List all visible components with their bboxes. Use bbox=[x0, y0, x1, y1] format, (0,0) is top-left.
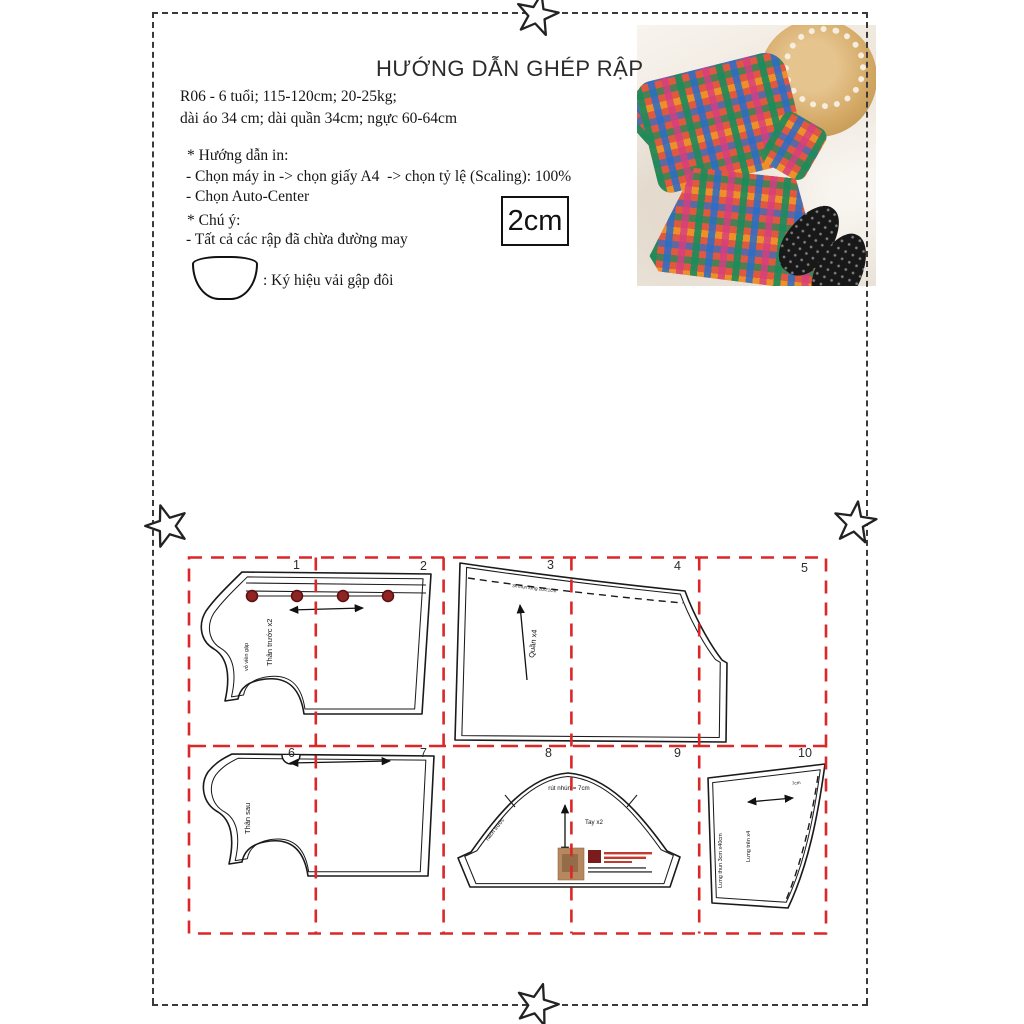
piece-label: Quần x4 bbox=[527, 629, 539, 658]
button-mark bbox=[292, 591, 303, 602]
sheet-border-top bbox=[152, 12, 868, 14]
fold-edge-line bbox=[786, 776, 818, 900]
button-mark bbox=[247, 591, 258, 602]
print-instructions-step1: - Chọn máy in -> chọn giấy A4 -> chọn tỷ… bbox=[186, 168, 571, 186]
star-icon bbox=[510, 0, 565, 42]
star-icon bbox=[138, 497, 196, 555]
page-title: HƯỚNG DẪN GHÉP RẬP bbox=[376, 56, 644, 82]
piece-label: Lưng trên x4 bbox=[746, 831, 752, 862]
pattern-piece-back-bodice: Thân sau bbox=[203, 754, 434, 876]
pattern-piece-sleeve: rút nhún = 7cm nách trước Tay x2 bbox=[458, 773, 680, 887]
size-info-line2: dài áo 34 cm; dài quần 34cm; ngực 60-64c… bbox=[180, 110, 457, 128]
star-icon bbox=[509, 977, 566, 1024]
product-photo bbox=[637, 25, 876, 286]
fold-symbol-caption: : Ký hiệu vải gập đôi bbox=[263, 272, 393, 290]
print-instructions-step2: - Chọn Auto-Center bbox=[186, 188, 309, 206]
size-info-line1: R06 - 6 tuổi; 115-120cm; 20-25kg; bbox=[180, 88, 397, 106]
button-mark bbox=[338, 591, 349, 602]
page-number-7: 7 bbox=[420, 746, 427, 760]
page-number-5: 5 bbox=[801, 561, 808, 575]
waist-note: 3x thun lưng 20/21cm bbox=[512, 583, 557, 593]
print-page-grid bbox=[189, 558, 826, 934]
page-number-1: 1 bbox=[293, 558, 300, 572]
page-number-10: 10 bbox=[798, 746, 812, 760]
note-heading: * Chú ý: bbox=[187, 212, 240, 230]
scale-reference-label: 2cm bbox=[508, 205, 563, 238]
fabric-fold-icon bbox=[192, 256, 258, 300]
page-number-4: 4 bbox=[674, 559, 681, 573]
fold-note: 7cm bbox=[792, 780, 801, 786]
grainline-arrow bbox=[520, 605, 527, 680]
scale-reference-box: 2cm bbox=[501, 196, 569, 246]
piece-label: Thân trước x2 bbox=[265, 619, 274, 666]
page-number-2: 2 bbox=[420, 559, 427, 573]
page-number-9: 9 bbox=[674, 746, 681, 760]
pattern-piece-pants: 3x thun lưng 20/21cm Quần x4 bbox=[455, 563, 727, 742]
elastic-label: Lưng thun 3cm x40cm bbox=[718, 833, 724, 888]
grainline-arrow bbox=[748, 798, 793, 802]
pattern-piece-waistband: Lưng thun 3cm x40cm Lưng trên x4 7cm bbox=[708, 764, 825, 908]
star-icon bbox=[829, 497, 881, 549]
pattern-instruction-sheet: HƯỚNG DẪN GHÉP RẬP R06 - 6 tuổi; 115-120… bbox=[0, 0, 1024, 1024]
print-instructions-heading: * Hướng dẫn in: bbox=[187, 147, 288, 165]
button-mark bbox=[383, 591, 394, 602]
page-number-6: 6 bbox=[288, 746, 295, 760]
piece-label: Thân sau bbox=[243, 803, 252, 834]
grainline-arrow bbox=[290, 761, 390, 763]
gather-note: rút nhún = 7cm bbox=[548, 785, 589, 792]
grainline-arrow bbox=[290, 608, 363, 610]
page-number-8: 8 bbox=[545, 746, 552, 760]
sheet-border-bottom bbox=[152, 1004, 868, 1006]
pattern-layout-drawing: Thân trước x2 vỏ viền gập 3x thun lưng 2… bbox=[186, 554, 829, 937]
page-number-3: 3 bbox=[547, 558, 554, 572]
piece-edge-label: vỏ viền gập bbox=[243, 643, 250, 671]
piece-label: Tay x2 bbox=[585, 819, 603, 826]
notch-mark bbox=[627, 795, 637, 807]
note-line: - Tất cả các rập đã chừa đường may bbox=[186, 231, 408, 249]
